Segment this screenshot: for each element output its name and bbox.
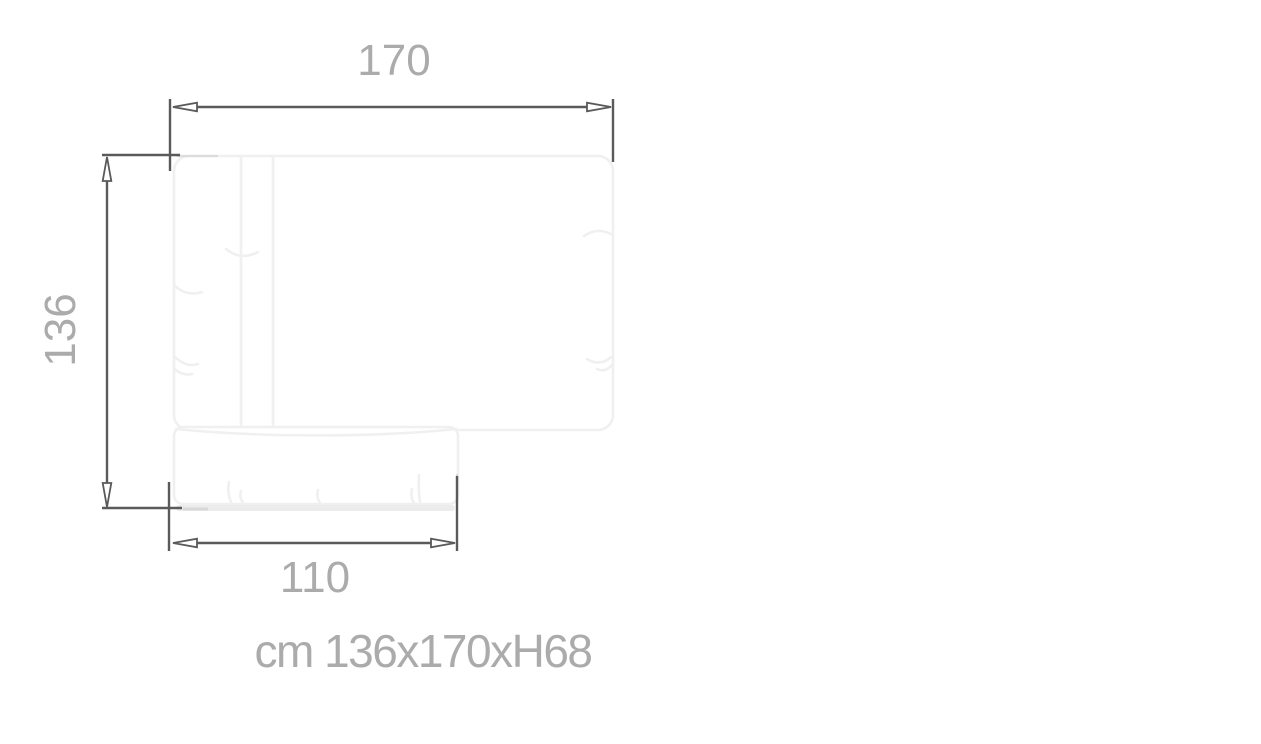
chaise-outline: [174, 427, 458, 504]
overall-size-caption: cm 136x170xH68: [223, 628, 623, 674]
sofa-body-outline: [174, 156, 613, 430]
depth-dimension-label: 136: [39, 270, 83, 390]
width-dimension-label: 170: [334, 39, 454, 83]
dimension-diagram: 170 136 110 cm 136x170xH68: [0, 0, 1261, 744]
sofa-outline-drawing: [0, 0, 1261, 744]
chaise-width-dimension-label: 110: [255, 556, 375, 600]
